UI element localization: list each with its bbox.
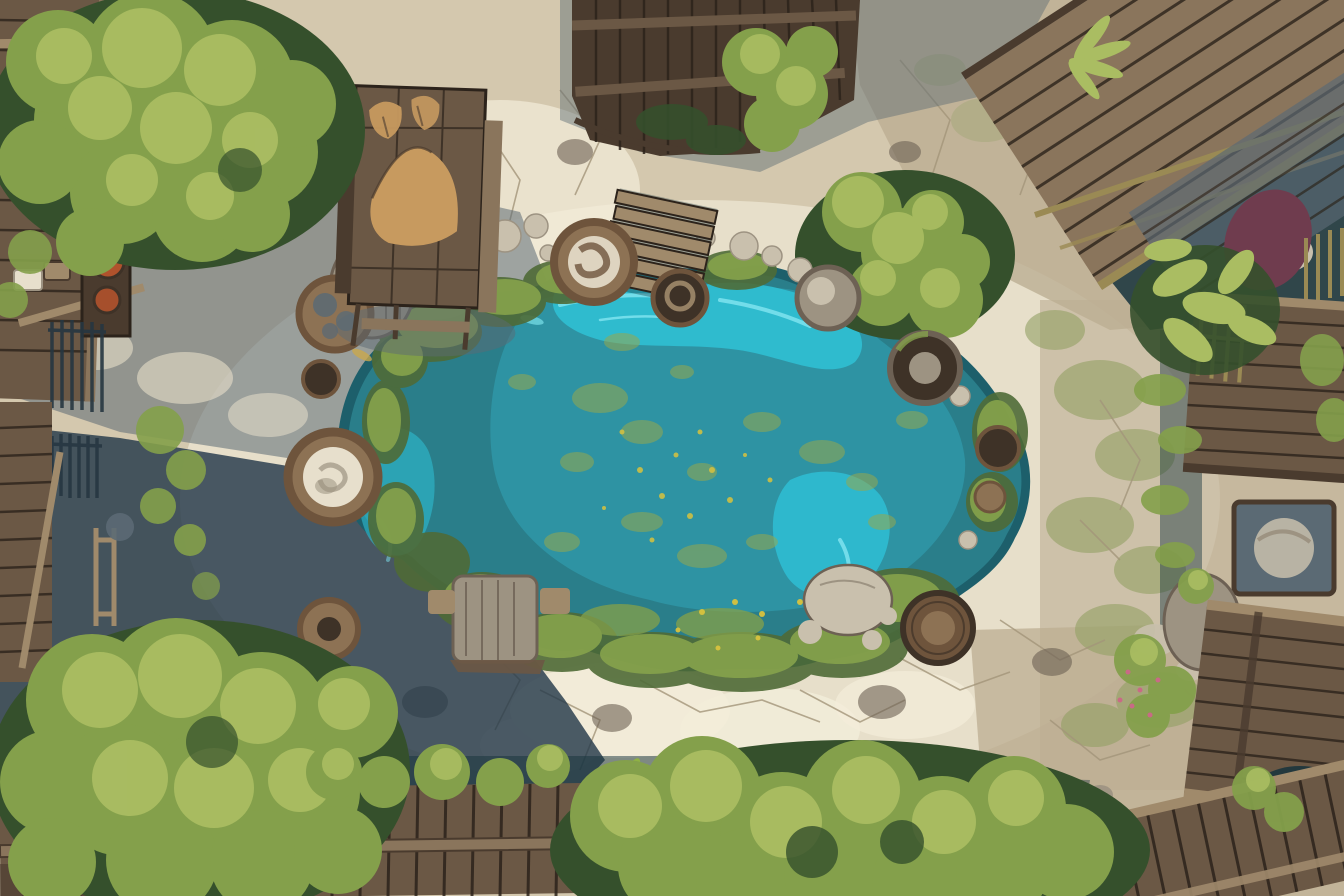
stone-disc — [106, 513, 134, 541]
pot-southeast — [903, 593, 973, 663]
red-clay-pot-2 — [94, 287, 120, 313]
battle-map-canvas — [0, 0, 1344, 896]
pot-east-small — [977, 427, 1019, 469]
pot-east-upper — [890, 333, 960, 403]
water-basin-right — [1234, 502, 1334, 594]
stone-ring-northeast — [797, 267, 859, 329]
pot-east-tiny — [975, 482, 1005, 512]
pot-west-small — [303, 361, 339, 397]
pot-large-north — [554, 222, 634, 302]
pot-small-north — [653, 271, 707, 325]
battle-map — [0, 0, 1344, 896]
walkway-left — [0, 402, 60, 682]
pot-large-west — [288, 432, 378, 522]
